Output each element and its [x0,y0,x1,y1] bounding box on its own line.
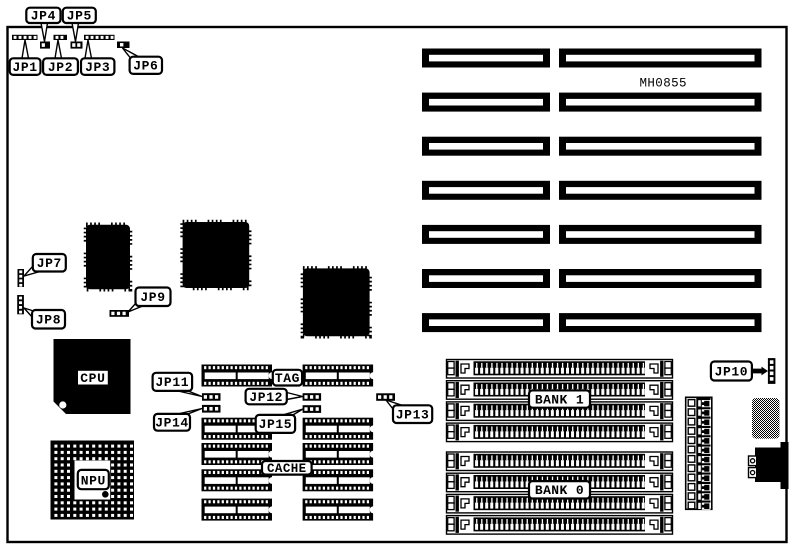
svg-text:JP7: JP7 [37,256,62,271]
svg-text:TAG: TAG [275,371,300,386]
svg-text:CPU: CPU [80,371,105,386]
svg-text:NPU: NPU [81,473,106,488]
svg-text:JP3: JP3 [85,60,110,75]
svg-text:JP15: JP15 [259,417,293,432]
svg-text:JP8: JP8 [36,313,61,328]
svg-text:CACHE: CACHE [267,462,307,476]
svg-text:JP12: JP12 [249,390,283,405]
svg-text:JP4: JP4 [31,9,56,24]
svg-text:BANK 0: BANK 0 [535,483,584,498]
svg-text:JP1: JP1 [12,60,37,75]
svg-text:JP13: JP13 [396,407,430,422]
svg-text:JP10: JP10 [715,364,749,379]
svg-text:JP5: JP5 [67,9,92,24]
svg-text:MH0855: MH0855 [640,77,687,91]
svg-text:JP14: JP14 [155,416,189,431]
svg-text:BANK 1: BANK 1 [535,392,584,407]
svg-text:JP11: JP11 [156,375,190,390]
svg-text:JP9: JP9 [140,290,165,305]
svg-text:JP6: JP6 [133,59,158,74]
svg-text:JP2: JP2 [48,60,73,75]
